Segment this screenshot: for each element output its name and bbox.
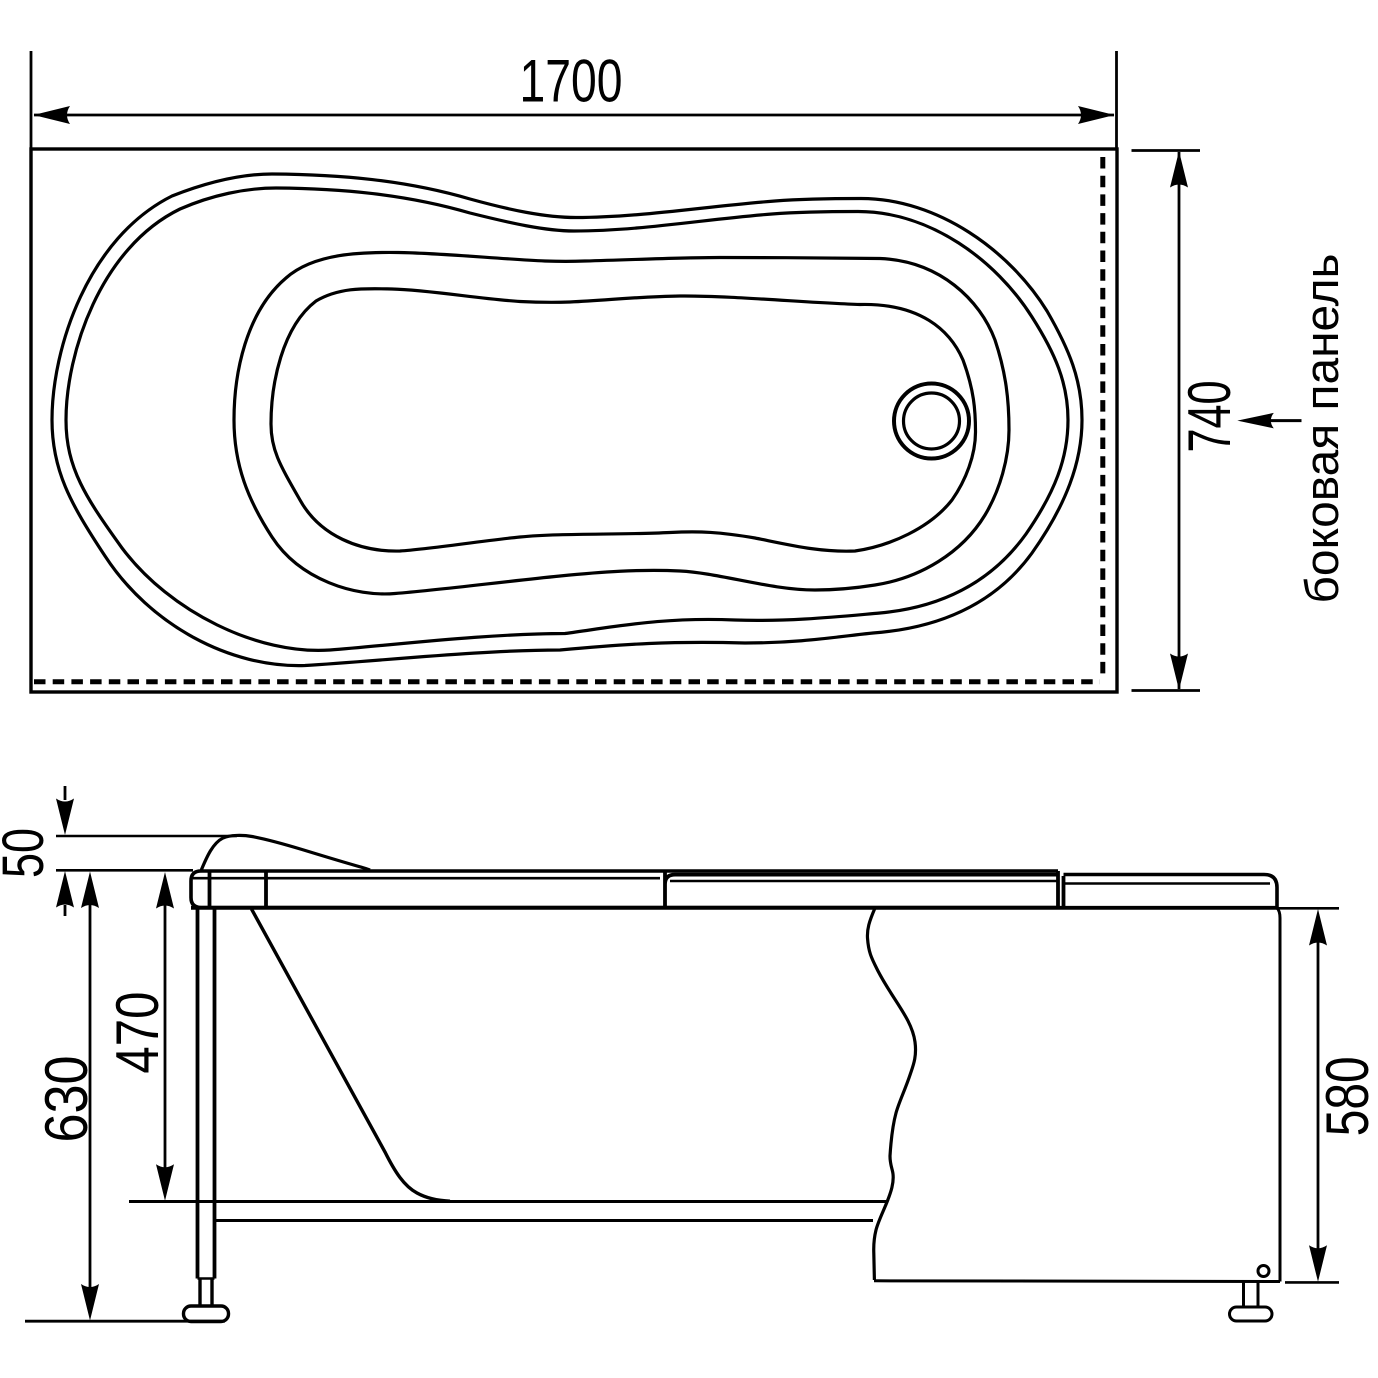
svg-text:470: 470 [104,992,171,1074]
svg-text:740: 740 [1176,381,1243,453]
svg-text:боковая панель: боковая панель [1295,254,1348,604]
svg-text:1700: 1700 [520,48,623,115]
svg-text:630: 630 [33,1056,100,1143]
svg-text:580: 580 [1314,1056,1378,1136]
svg-text:50: 50 [0,828,56,878]
